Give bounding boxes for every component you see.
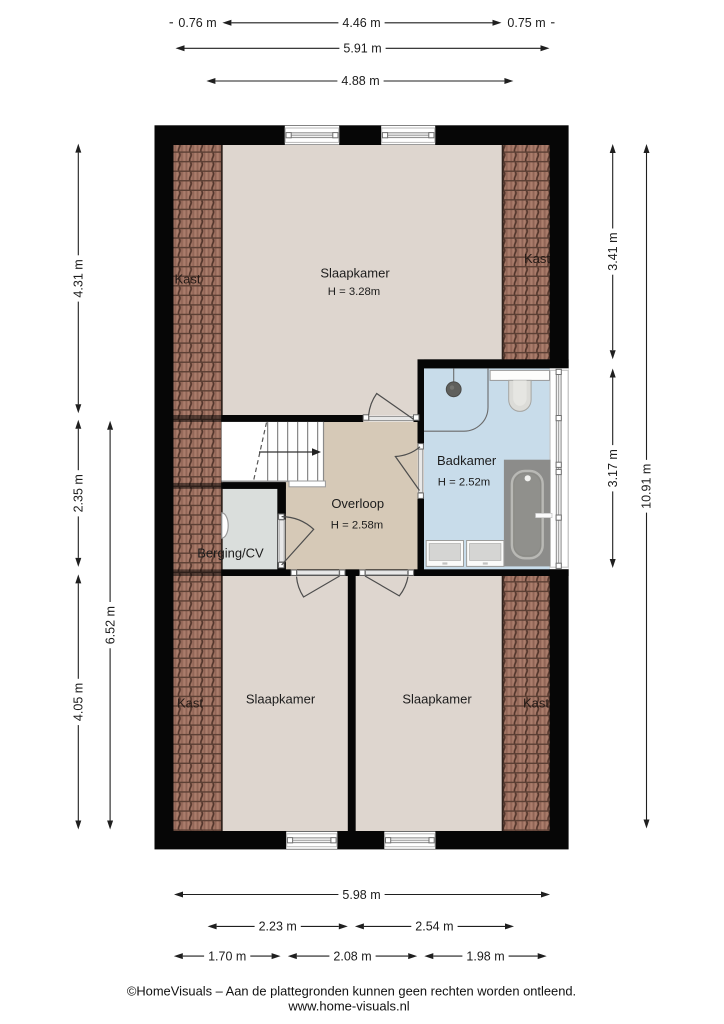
svg-text:2.23 m: 2.23 m: [259, 920, 297, 934]
svg-text:10.91 m: 10.91 m: [640, 464, 654, 509]
svg-text:Berging/CV: Berging/CV: [197, 545, 264, 560]
svg-text:0.76 m: 0.76 m: [178, 16, 216, 30]
svg-text:H = 2.58m: H = 2.58m: [331, 520, 383, 532]
svg-text:Kast: Kast: [177, 696, 203, 711]
svg-text:4.46 m: 4.46 m: [342, 16, 380, 30]
svg-text:0.75 m: 0.75 m: [507, 16, 545, 30]
svg-text:3.17 m: 3.17 m: [606, 449, 620, 487]
svg-text:1.70 m: 1.70 m: [208, 949, 246, 963]
svg-text:2.54 m: 2.54 m: [415, 920, 453, 934]
svg-text:4.05 m: 4.05 m: [72, 683, 86, 721]
svg-text:4.31 m: 4.31 m: [72, 259, 86, 297]
svg-text:Slaapkamer: Slaapkamer: [320, 266, 390, 281]
svg-text:6.52 m: 6.52 m: [103, 606, 117, 644]
svg-text:Kast: Kast: [174, 272, 200, 287]
svg-text:©HomeVisuals – Aan de plattegr: ©HomeVisuals – Aan de plattegronden kunn…: [127, 984, 576, 999]
svg-text:Kast: Kast: [523, 696, 549, 711]
svg-text:Badkamer: Badkamer: [437, 453, 497, 468]
svg-text:Overloop: Overloop: [331, 496, 384, 511]
svg-text:Slaapkamer: Slaapkamer: [246, 692, 316, 707]
svg-text:H = 3.28m: H = 3.28m: [328, 286, 380, 298]
svg-text:Slaapkamer: Slaapkamer: [402, 692, 472, 707]
svg-text:H = 2.52m: H = 2.52m: [438, 477, 490, 489]
svg-text:4.88 m: 4.88 m: [341, 74, 379, 88]
svg-text:5.91 m: 5.91 m: [343, 42, 381, 56]
svg-text:www.home-visuals.nl: www.home-visuals.nl: [287, 999, 409, 1014]
svg-text:3.41 m: 3.41 m: [606, 232, 620, 270]
svg-text:1.98 m: 1.98 m: [466, 949, 504, 963]
svg-text:5.98 m: 5.98 m: [342, 888, 380, 902]
svg-text:Kast: Kast: [524, 251, 550, 266]
svg-text:2.08 m: 2.08 m: [333, 949, 371, 963]
svg-text:2.35 m: 2.35 m: [72, 474, 86, 512]
